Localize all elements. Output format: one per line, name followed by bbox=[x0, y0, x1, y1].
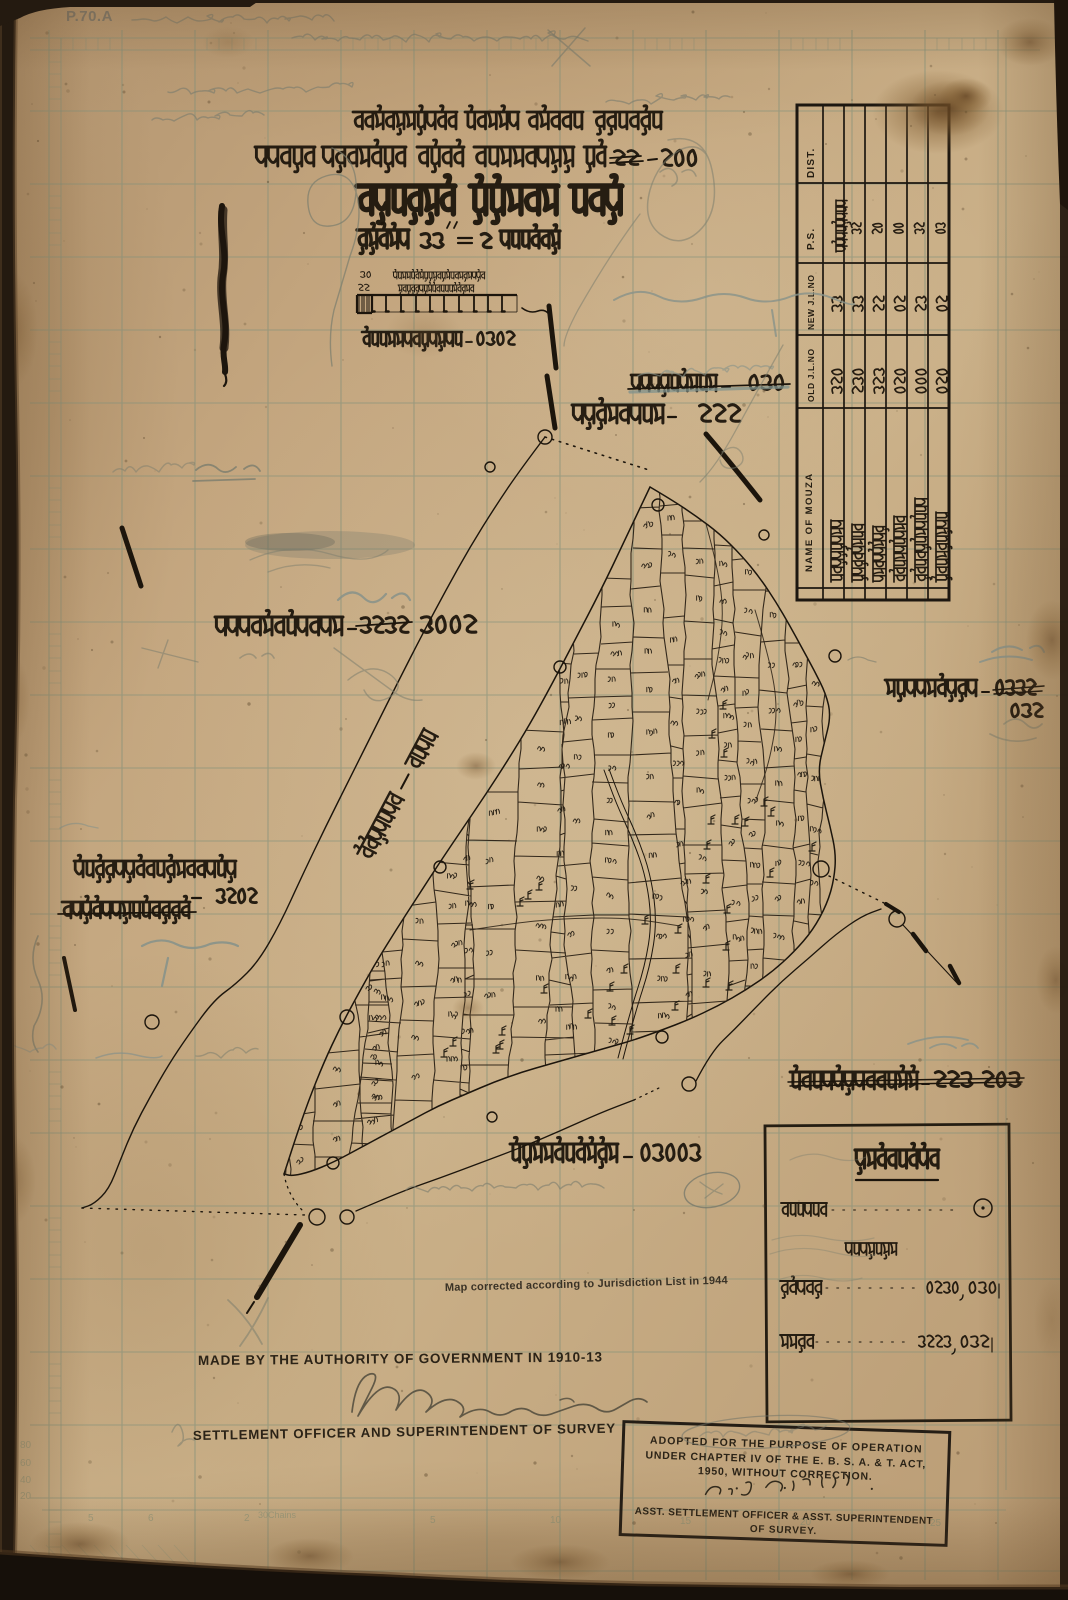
svg-text:DIST.: DIST. bbox=[806, 148, 817, 178]
svg-text:NAME OF MOUZA: NAME OF MOUZA bbox=[804, 473, 815, 572]
svg-text:P.S.: P.S. bbox=[806, 228, 817, 250]
svg-text:NEW J.L.NO: NEW J.L.NO bbox=[806, 274, 816, 330]
svg-text:OLD J.L.NO: OLD J.L.NO bbox=[806, 348, 816, 402]
